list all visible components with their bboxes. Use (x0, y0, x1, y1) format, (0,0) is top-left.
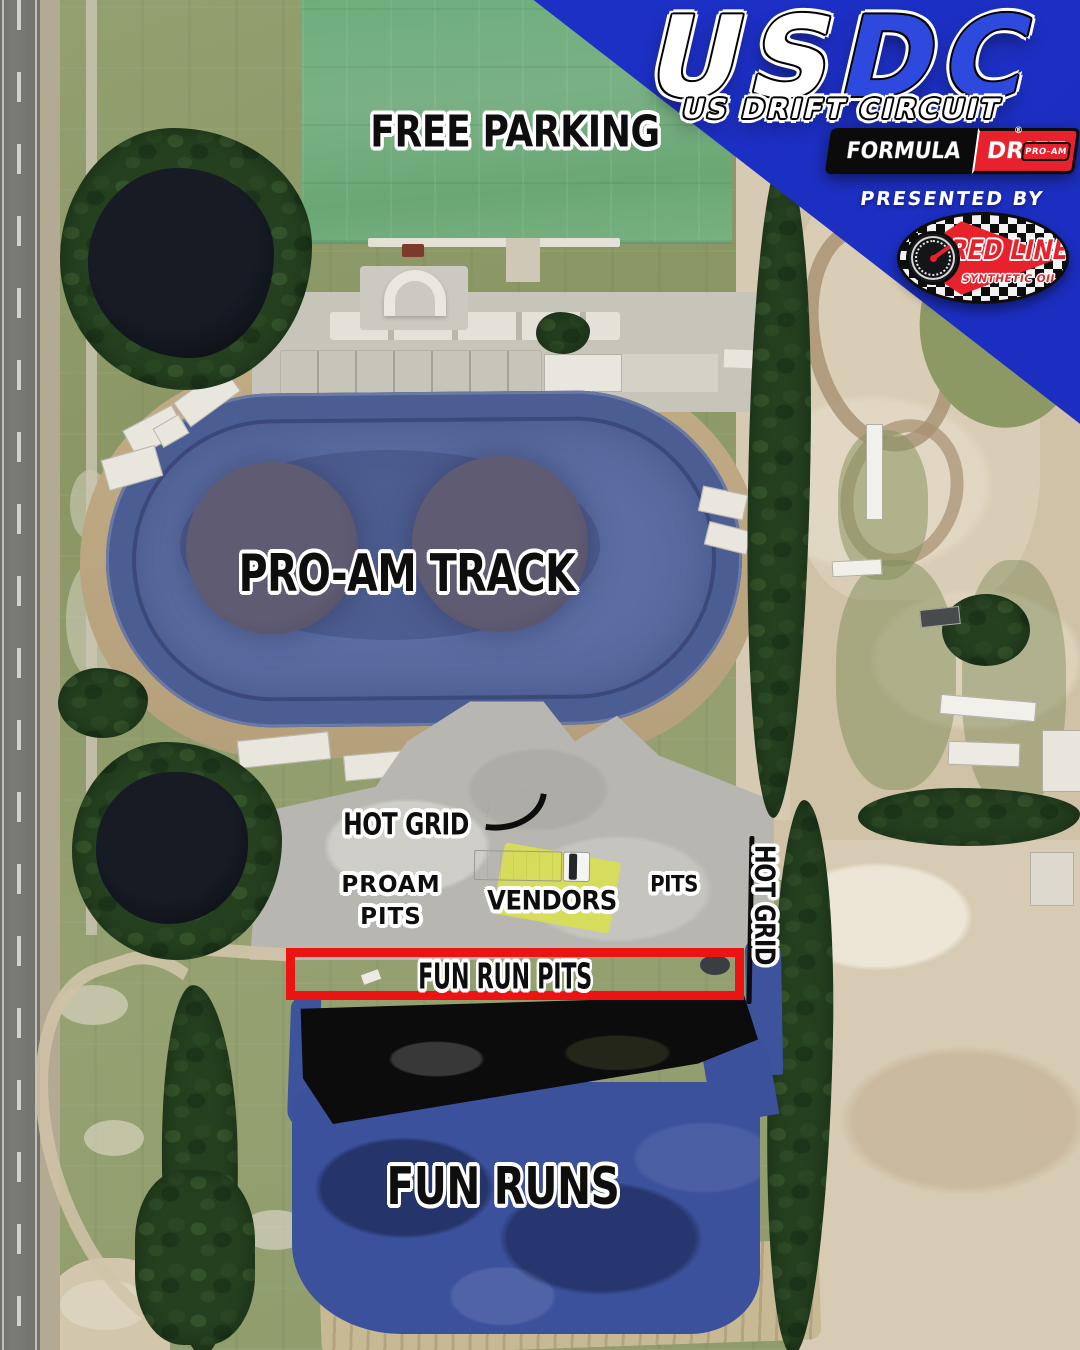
presented-by-text: PRESENTED BY (830, 188, 1073, 210)
entrance-path (506, 238, 540, 282)
building-annex (622, 354, 718, 392)
redline-tagline: SYNTHETIC OIL (961, 273, 1059, 285)
parked-rv (948, 741, 1021, 767)
formula-wordmark: FORMULA (825, 128, 978, 174)
tachometer-icon (906, 231, 960, 285)
hot-grid-upper-label: HOT GRID (343, 808, 469, 843)
grandstand-right (544, 354, 622, 392)
redline-logo: RED LINE® SYNTHETIC OIL (897, 212, 1069, 304)
usdc-subtitle: US DRIFT CIRCUIT (652, 94, 1031, 125)
venue-map: FREE PARKING PRO-AM TRACK HOT GRID PROAM… (0, 0, 1080, 1350)
registered-mark: ® (1014, 126, 1023, 136)
truck-windshield (569, 854, 577, 880)
parked-trailer (1042, 730, 1080, 792)
truck-cab (563, 852, 591, 882)
fun-run-pits-label: FUN RUN PITS (418, 957, 592, 998)
registered-mark: ® (1068, 241, 1069, 252)
dirt-area-bottom-right (790, 840, 1080, 1350)
free-parking-label: FREE PARKING (370, 107, 659, 158)
vendors-label: VENDORS (487, 886, 617, 917)
redline-oval-checker: RED LINE® SYNTHETIC OIL (897, 212, 1069, 304)
truck-trailer (474, 850, 563, 882)
grass-patch (838, 430, 928, 580)
vendor-truck-icon (474, 847, 593, 885)
road-edge-line (35, 0, 37, 1350)
proam-pits-line1: PROAM (341, 869, 440, 901)
redline-name: RED LINE® (947, 235, 1069, 266)
road-center-line (17, 0, 21, 1350)
pits-label: PITS (650, 873, 698, 898)
grandstand-main (280, 350, 542, 396)
parked-trailer (866, 424, 883, 520)
road-edge-line (2, 0, 4, 1350)
hot-grid-right-label: HOT GRID (749, 845, 782, 965)
proam-track-label: PRO-AM TRACK (239, 544, 576, 604)
parked-trailer (1030, 852, 1074, 906)
grass-patch (836, 560, 956, 790)
ticket-hut (402, 244, 424, 257)
pro-am-badge: PRO-AM (1021, 142, 1072, 161)
proam-pits-label: PROAM PITS (341, 869, 440, 933)
tree-cluster (135, 1170, 255, 1345)
parked-trailer (832, 559, 883, 578)
proam-pits-line2: PITS (341, 901, 440, 933)
tree-cluster (942, 594, 1030, 666)
fun-runs-label: FUN RUNS (387, 1157, 620, 1217)
